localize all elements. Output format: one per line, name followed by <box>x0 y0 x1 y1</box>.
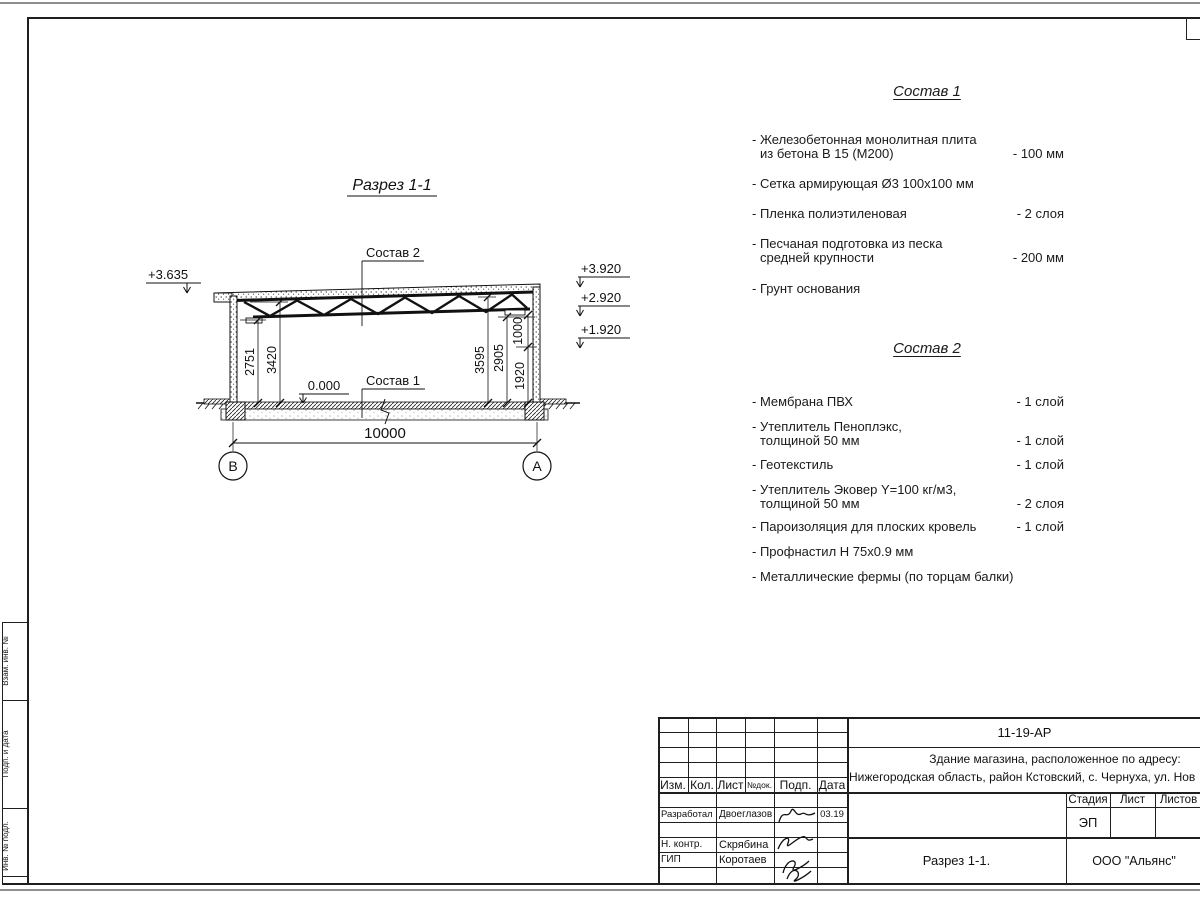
spec-list-2: Состав 2 - Мембрана ПВХ - 1 слой - Утепл… <box>752 340 1064 357</box>
spec2-item: - Утеплитель Пеноплэкс,толщиной 50 мм - … <box>752 420 1064 448</box>
frame-top <box>27 17 1200 19</box>
sostav1-label: Состав 1 <box>366 373 420 388</box>
spec2-item: - Геотекстиль - 1 слой <box>752 458 1064 472</box>
elevation-right-1: +3.920 <box>577 261 631 287</box>
svg-text:А: А <box>532 458 542 474</box>
svg-text:1920: 1920 <box>513 362 527 390</box>
corner-stamp-box <box>1186 17 1200 40</box>
drawing-sheet: { "section": { "title": "Разрез 1-1", "l… <box>0 0 1200 900</box>
svg-text:+1.920: +1.920 <box>581 322 621 337</box>
side-stamp-label-top: Взам. инв. № <box>0 622 19 700</box>
tb-row2-name: Скрябина <box>719 837 774 852</box>
tb-sheet-label: Лист <box>1110 792 1155 807</box>
ground-floor <box>196 399 580 424</box>
tb-address-line2: Нижегородская область, район Кстовский, … <box>849 769 1200 785</box>
side-stamp-label-bottom: Инв. № подл. <box>0 808 19 884</box>
page-edge-top <box>0 2 1200 4</box>
side-stamp-label-mid: Подп. и дата <box>0 700 19 808</box>
frame-left <box>27 17 29 884</box>
tb-row1-role: Разработал <box>661 807 716 822</box>
dim-10000: 10000 <box>229 422 541 451</box>
dim-1920-1000: 1000 1920 <box>511 311 536 407</box>
page-edge-bottom <box>0 889 1200 891</box>
elevation-right-2: +2.920 <box>577 290 631 316</box>
dim-2751: 2751 <box>240 316 266 407</box>
tb-row1-name: Двоеглазов <box>719 807 774 822</box>
tb-row1-date: 03.19 <box>817 807 847 822</box>
tb-row3-role: ГИП <box>661 852 716 867</box>
spec-list-1: Состав 1 - Железобетонная монолитная пли… <box>752 83 1064 100</box>
spec1-item: - Железобетонная монолитная плитаиз бето… <box>752 133 1064 161</box>
svg-text:3595: 3595 <box>473 346 487 374</box>
tb-sheets-label: Листов <box>1155 792 1200 807</box>
spec1-item: - Сетка армирующая Ø3 100х100 мм <box>752 177 1064 191</box>
tb-col-list: Лист <box>716 777 745 792</box>
svg-text:+2.920: +2.920 <box>581 290 621 305</box>
tb-row3-name: Коротаев <box>719 852 774 867</box>
signature-nkontr-gip <box>775 833 817 883</box>
tb-col-podp: Подп. <box>774 777 817 792</box>
spec2-heading: Состав 2 <box>771 340 1083 357</box>
tb-company: ООО "Альянс" <box>1066 837 1200 884</box>
tb-stage-value: ЭП <box>1066 807 1110 837</box>
svg-text:10000: 10000 <box>364 425 406 442</box>
tb-drawing-name: Разрез 1-1. <box>847 837 1066 884</box>
sostav2-label: Состав 2 <box>366 245 420 260</box>
section-drawing: Разрез 1-1 Состав 2 Состав <box>130 170 660 500</box>
svg-text:2905: 2905 <box>492 344 506 372</box>
elevation-right-3: +1.920 <box>577 322 631 348</box>
tb-stage-label: Стадия <box>1066 792 1110 807</box>
spec2-item: - Металлические фермы (по торцам балки) <box>752 570 1064 584</box>
svg-text:0.000: 0.000 <box>308 378 341 393</box>
signature-razrabotal <box>775 802 817 828</box>
tb-row2-role: Н. контр. <box>661 837 716 852</box>
tb-address-line1: Здание магазина, расположенное по адресу… <box>855 751 1200 767</box>
section-title: Разрез 1-1 <box>352 177 431 194</box>
svg-text:1000: 1000 <box>511 317 525 345</box>
spec1-item: - Песчаная подготовка из пескасредней кр… <box>752 237 1064 265</box>
svg-text:+3.920: +3.920 <box>581 261 621 276</box>
title-block: Изм. Кол. Лист №док. Подп. Дата Разработ… <box>658 717 1200 884</box>
spec2-item: - Пароизоляция для плоских кровель - 1 с… <box>752 520 1064 534</box>
spec2-item: - Мембрана ПВХ - 1 слой <box>752 395 1064 409</box>
tb-col-data: Дата <box>817 777 847 792</box>
tb-col-ndok: №док. <box>745 777 774 792</box>
spec1-heading: Состав 1 <box>771 83 1083 100</box>
axis-bubble-a: А <box>523 452 551 480</box>
elevation-left: +3.635 <box>146 267 201 293</box>
svg-text:+3.635: +3.635 <box>148 267 188 282</box>
spec1-item: - Грунт основания <box>752 282 1064 296</box>
zero-elevation-mark: 0.000 <box>299 378 349 403</box>
spec1-item: - Пленка полиэтиленовая - 2 слоя <box>752 207 1064 221</box>
tb-doc-number: 11-19-АР <box>847 717 1200 747</box>
spec2-item: - Профнастил Н 75х0.9 мм <box>752 545 1064 559</box>
svg-text:3420: 3420 <box>265 346 279 374</box>
svg-text:2751: 2751 <box>243 348 257 376</box>
spec2-item: - Утеплитель Эковер Y=100 кг/м3,толщиной… <box>752 483 1064 511</box>
tb-col-izm: Изм. <box>658 777 688 792</box>
svg-text:В: В <box>228 458 237 474</box>
tb-col-kol: Кол. <box>688 777 716 792</box>
axis-bubble-b: В <box>219 452 247 480</box>
